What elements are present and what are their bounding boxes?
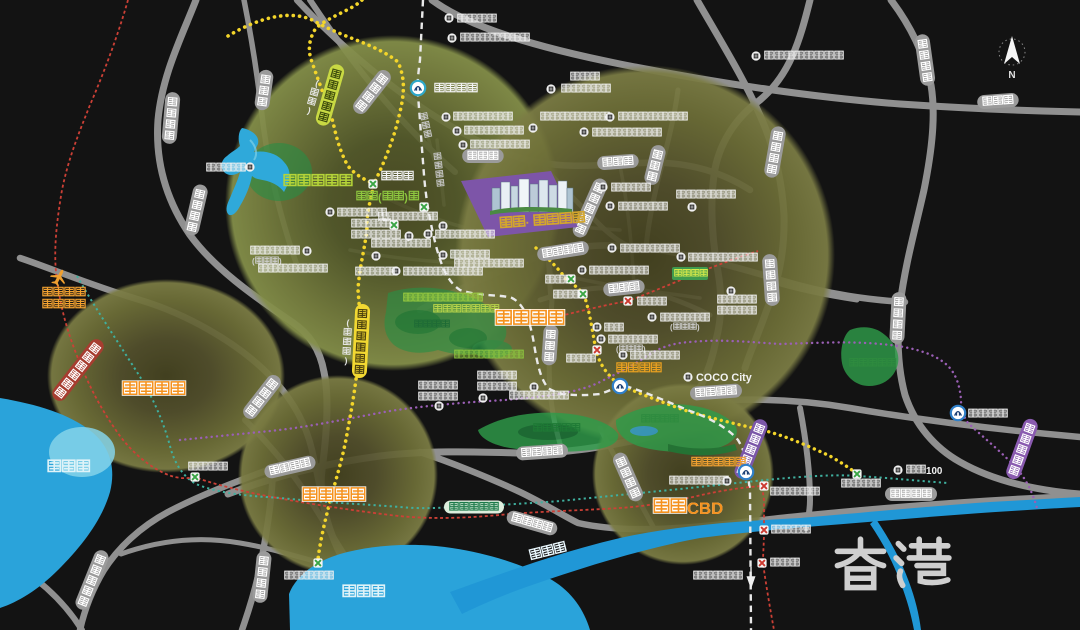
svg-text:(: ( bbox=[616, 345, 619, 354]
svg-text:(: ( bbox=[378, 192, 382, 204]
svg-text:N: N bbox=[1008, 70, 1015, 81]
svg-text:): ) bbox=[697, 323, 700, 332]
svg-text:100: 100 bbox=[926, 466, 943, 477]
svg-text:COCO City: COCO City bbox=[696, 372, 752, 384]
svg-text:(: ( bbox=[252, 257, 255, 266]
svg-text:): ) bbox=[404, 192, 408, 204]
svg-text:CBD: CBD bbox=[687, 499, 723, 518]
svg-text:(: ( bbox=[670, 323, 673, 332]
